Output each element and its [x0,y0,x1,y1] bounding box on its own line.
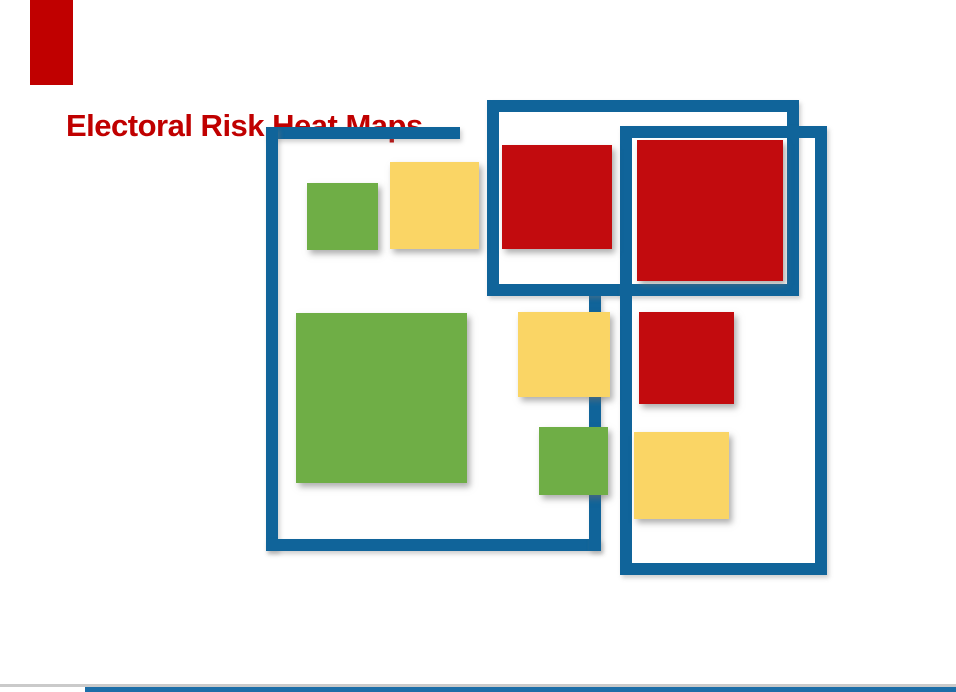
left-frame-left-border [266,127,278,551]
yellow-square-bottom [634,432,729,519]
yellow-square-top [390,162,479,249]
green-square-bottom [539,427,608,495]
red-square-top [502,145,612,249]
yellow-square-middle [518,312,610,397]
red-corner-accent-bar [30,0,73,85]
slide-canvas: Electoral Risk Heat Maps [0,0,956,692]
bottom-blue-accent-line [85,687,956,692]
left-frame-top-border [266,127,460,139]
red-square-large [637,140,783,281]
left-frame-bottom-border [266,539,601,551]
red-square-middle [639,312,734,404]
green-square-large [296,313,467,483]
green-square-top [307,183,378,250]
